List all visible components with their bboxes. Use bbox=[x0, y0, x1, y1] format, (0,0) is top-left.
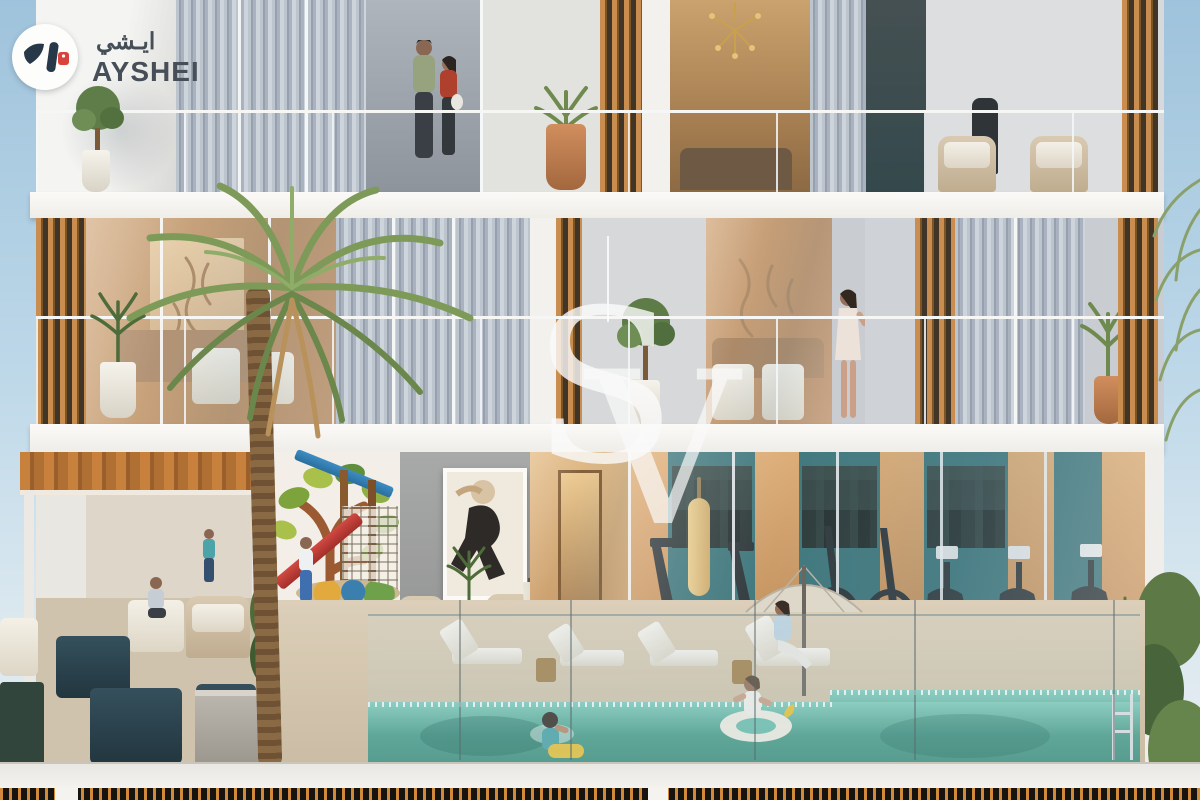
lounge-sofa bbox=[90, 688, 182, 764]
fence-post bbox=[459, 600, 461, 760]
fence-gap bbox=[55, 788, 78, 800]
ayshei-logo: ايـشي AYSHEI bbox=[12, 24, 272, 100]
pendant-light bbox=[702, 2, 768, 64]
logo-arabic-text: ايـشي bbox=[96, 28, 155, 55]
pool-edge-band bbox=[0, 762, 1200, 790]
fence-post bbox=[914, 600, 916, 760]
watermark-letter-v: V bbox=[586, 344, 739, 556]
timber-privacy-fence bbox=[0, 788, 1200, 800]
architectural-render-scene: S V ايـشي AYSHEI bbox=[0, 0, 1200, 800]
pergola-roof bbox=[20, 452, 270, 495]
fence-post bbox=[1113, 600, 1115, 760]
seated-person bbox=[142, 576, 170, 622]
fence-post bbox=[570, 600, 572, 760]
potted-palm bbox=[442, 540, 496, 602]
fence-post bbox=[754, 600, 756, 760]
playing-child bbox=[296, 536, 316, 606]
playing-child bbox=[200, 528, 218, 584]
balustrade-rail bbox=[36, 110, 1164, 113]
palm-fronds-right bbox=[1146, 140, 1200, 470]
palm-canopy bbox=[110, 168, 490, 458]
lounge-armchair bbox=[0, 618, 38, 676]
planter-pot bbox=[82, 150, 110, 192]
ayshei-mark-icon bbox=[22, 40, 72, 76]
chair-cushion bbox=[192, 604, 244, 632]
dark-planter bbox=[0, 682, 44, 774]
fence-gap bbox=[648, 788, 668, 800]
logo-latin-text: AYSHEI bbox=[92, 56, 200, 88]
